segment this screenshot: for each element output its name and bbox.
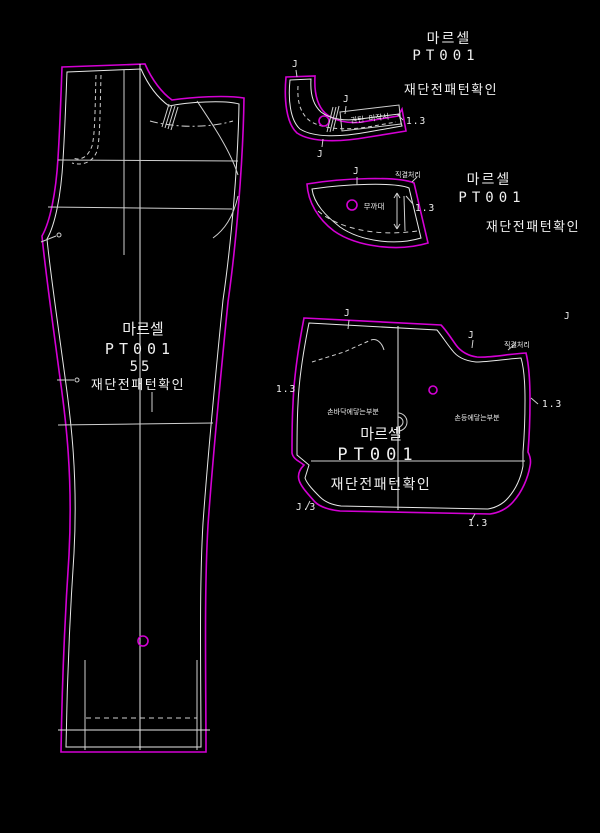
seam-label: 1.3 <box>415 203 435 214</box>
facing-center-label: 무까대 <box>364 202 385 211</box>
facing-cut-note: 재단전패턴확인 <box>486 220 580 235</box>
seam-label: 1.3 <box>468 518 488 529</box>
seam-label: J <box>317 149 324 160</box>
pocket-palm-label: 손바닥에닿는부분 <box>327 407 379 416</box>
drawing-surface[interactable]: 마르셀 PT001 55 재단전패턴확인 권틴 미작시 무까대 <box>0 0 600 833</box>
header-cut-note: 재단전패턴확인 <box>404 83 498 98</box>
seam-label: J <box>468 330 475 341</box>
seam-label: J <box>564 311 571 322</box>
pocket-style-name: 마르셀 <box>360 425 401 443</box>
leg-style-code: PT001 <box>105 340 175 358</box>
pocket-backhand-label: 손등에닿는부분 <box>454 413 500 422</box>
seam-label: J <box>344 308 351 319</box>
header-style-name: 마르셀 <box>427 31 472 47</box>
header-style-code: PT001 <box>412 48 479 64</box>
finish-label: 직결처리 <box>395 170 421 179</box>
facing-style-name: 마르셀 <box>467 172 512 188</box>
facing-style-code: PT001 <box>458 190 525 206</box>
canvas-background <box>0 0 600 833</box>
seam-label: J <box>353 166 360 177</box>
seam-label: 1.3 <box>276 384 296 395</box>
leg-cut-note: 재단전패턴확인 <box>91 378 185 393</box>
pocket-cut-note: 재단전패턴확인 <box>331 477 432 493</box>
pocket-style-code: PT001 <box>337 445 418 465</box>
leg-size: 55 <box>130 359 153 375</box>
leg-style-name: 마르셀 <box>122 320 163 338</box>
seam-label: J <box>292 59 299 70</box>
finish-label: 직결처리 <box>504 340 530 349</box>
seam-label: 1.3 <box>406 116 426 127</box>
pattern-cad-canvas[interactable]: 마르셀 PT001 55 재단전패턴확인 권틴 미작시 무까대 <box>0 0 600 833</box>
seam-label: J <box>343 94 350 105</box>
seam-label: 1.3 <box>542 399 562 410</box>
seam-label: J.3 <box>296 502 316 513</box>
